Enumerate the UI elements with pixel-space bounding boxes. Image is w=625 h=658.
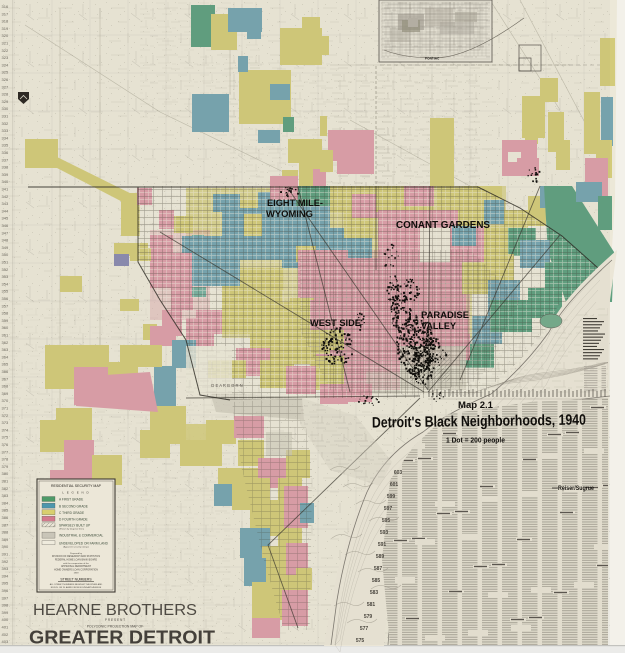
svg-text:372: 372 <box>2 413 9 418</box>
svg-text:392: 392 <box>2 559 9 564</box>
svg-text:319: 319 <box>2 26 9 31</box>
svg-text:317: 317 <box>2 11 9 16</box>
svg-text:338: 338 <box>2 165 9 170</box>
svg-text:Detroit's Black Neighborhoods,: Detroit's Black Neighborhoods, 1940 <box>372 412 586 432</box>
svg-text:397: 397 <box>2 595 9 600</box>
svg-text:380: 380 <box>2 471 9 476</box>
svg-text:344: 344 <box>2 208 9 213</box>
svg-text:342: 342 <box>2 194 9 199</box>
svg-text:C THIRD GRADE: C THIRD GRADE <box>59 511 84 515</box>
svg-text:360: 360 <box>2 325 9 330</box>
svg-text:B SECOND GRADE: B SECOND GRADE <box>59 504 88 508</box>
svg-text:EIGHT MILE-: EIGHT MILE- <box>267 198 323 209</box>
svg-text:352: 352 <box>2 267 9 272</box>
svg-text:PARADISE: PARADISE <box>421 310 469 321</box>
svg-text:355: 355 <box>2 289 9 294</box>
svg-text:D FOURTH GRADE: D FOURTH GRADE <box>59 518 88 522</box>
svg-text:370: 370 <box>2 398 9 403</box>
svg-text:381: 381 <box>2 479 9 484</box>
svg-text:395: 395 <box>2 581 9 586</box>
svg-text:SPARSELY BUILT UP: SPARSELY BUILT UP <box>59 524 90 528</box>
svg-text:349: 349 <box>2 245 9 250</box>
svg-text:387: 387 <box>2 522 9 527</box>
svg-text:359: 359 <box>2 318 9 323</box>
svg-text:358: 358 <box>2 311 9 316</box>
svg-text:368: 368 <box>2 384 9 389</box>
svg-text:402: 402 <box>2 632 9 637</box>
svg-text:WYOMING: WYOMING <box>266 209 313 220</box>
svg-text:GREATER DETROIT: GREATER DETROIT <box>29 628 215 648</box>
svg-text:378: 378 <box>2 457 9 462</box>
svg-text:362: 362 <box>2 340 9 345</box>
svg-text:365: 365 <box>2 362 9 367</box>
svg-text:ALL STREET NUMBERS BEGIN AT TH: ALL STREET NUMBERS BEGIN AT THE RIVER AN… <box>50 583 103 586</box>
svg-text:384: 384 <box>2 500 9 505</box>
svg-text:361: 361 <box>2 333 9 338</box>
svg-text:400: 400 <box>2 617 9 622</box>
svg-text:376: 376 <box>2 442 9 447</box>
svg-text:369: 369 <box>2 391 9 396</box>
svg-text:403: 403 <box>2 639 9 644</box>
svg-text:357: 357 <box>2 303 9 308</box>
svg-text:316: 316 <box>2 4 9 9</box>
svg-text:326: 326 <box>2 77 9 82</box>
svg-text:FEDERAL HOME LOAN BANK BOA: FEDERAL HOME LOAN BANK BOARD <box>55 559 98 562</box>
svg-text:HOME OWNERS LOAN CORPORATIO: HOME OWNERS LOAN CORPORATION <box>54 568 98 571</box>
svg-text:385: 385 <box>2 508 9 513</box>
svg-text:318: 318 <box>2 19 9 24</box>
svg-text:VALLEY: VALLEY <box>421 321 457 332</box>
svg-text:336: 336 <box>2 150 9 155</box>
svg-text:340: 340 <box>2 179 9 184</box>
svg-text:323: 323 <box>2 55 9 60</box>
svg-text:374: 374 <box>2 427 9 432</box>
svg-text:367: 367 <box>2 376 9 381</box>
svg-text:1939: 1939 <box>74 573 80 575</box>
svg-text:327: 327 <box>2 84 9 89</box>
svg-text:Reiser/Sugrue: Reiser/Sugrue <box>558 485 594 492</box>
svg-text:Map 2.1: Map 2.1 <box>458 400 494 411</box>
svg-text:321: 321 <box>2 41 9 46</box>
svg-text:363: 363 <box>2 347 9 352</box>
svg-text:379: 379 <box>2 464 9 469</box>
svg-text:324: 324 <box>2 62 9 67</box>
svg-text:347: 347 <box>2 230 9 235</box>
svg-text:L E G E N D: L E G E N D <box>62 491 89 495</box>
svg-text:356: 356 <box>2 296 9 301</box>
svg-text:391: 391 <box>2 552 9 557</box>
svg-text:332: 332 <box>2 121 9 126</box>
svg-text:348: 348 <box>2 238 9 243</box>
svg-text:330: 330 <box>2 106 9 111</box>
svg-text:328: 328 <box>2 92 9 97</box>
svg-text:STREET NUMBERS: STREET NUMBERS <box>60 577 92 581</box>
svg-text:396: 396 <box>2 588 9 593</box>
svg-text:353: 353 <box>2 274 9 279</box>
svg-text:371: 371 <box>2 406 9 411</box>
svg-text:354: 354 <box>2 281 9 286</box>
svg-text:345: 345 <box>2 216 9 221</box>
svg-text:RUN N. OR W. AWAY FROM BOUNDAR: RUN N. OR W. AWAY FROM BOUNDARY AVENUE <box>51 586 102 589</box>
svg-text:322: 322 <box>2 48 9 53</box>
svg-text:341: 341 <box>2 187 9 192</box>
svg-text:335: 335 <box>2 143 9 148</box>
svg-text:329: 329 <box>2 99 9 104</box>
svg-text:351: 351 <box>2 260 9 265</box>
svg-text:339: 339 <box>2 172 9 177</box>
svg-text:373: 373 <box>2 420 9 425</box>
svg-text:366: 366 <box>2 369 9 374</box>
svg-text:P R E S E N T: P R E S E N T <box>105 618 125 622</box>
svg-text:375: 375 <box>2 435 9 440</box>
svg-text:394: 394 <box>2 573 9 578</box>
svg-text:D E A R B O R N: D E A R B O R N <box>211 383 242 388</box>
svg-text:337: 337 <box>2 157 9 162</box>
svg-text:325: 325 <box>2 70 9 75</box>
svg-text:334: 334 <box>2 135 9 140</box>
svg-text:389: 389 <box>2 537 9 542</box>
svg-text:399: 399 <box>2 610 9 615</box>
svg-text:382: 382 <box>2 486 9 491</box>
svg-text:364: 364 <box>2 354 9 359</box>
svg-text:A FIRST GRADE: A FIRST GRADE <box>59 498 83 502</box>
svg-text:388: 388 <box>2 530 9 535</box>
svg-text:377: 377 <box>2 449 9 454</box>
svg-text:398: 398 <box>2 603 9 608</box>
svg-text:UNDEVELOPED OR FARM LAND: UNDEVELOPED OR FARM LAND <box>59 541 109 545</box>
svg-text:RESIDENTIAL SECURITY MAP: RESIDENTIAL SECURITY MAP <box>51 484 102 488</box>
svg-text:320: 320 <box>2 33 9 38</box>
svg-text:WEST SIDE: WEST SIDE <box>310 318 361 329</box>
svg-text:333: 333 <box>2 128 9 133</box>
svg-text:CONANT GARDENS: CONANT GARDENS <box>396 220 490 231</box>
svg-text:1 Dot = 200 people: 1 Dot = 200 people <box>446 436 505 445</box>
svg-text:346: 346 <box>2 223 9 228</box>
svg-text:(Apparent security ratings): (Apparent security ratings) <box>63 546 89 549</box>
svg-text:393: 393 <box>2 566 9 571</box>
svg-text:390: 390 <box>2 544 9 549</box>
svg-text:350: 350 <box>2 252 9 257</box>
svg-text:331: 331 <box>2 114 9 119</box>
svg-text:(Shown by diagonal lines): (Shown by diagonal lines) <box>59 529 84 531</box>
svg-text:383: 383 <box>2 493 9 498</box>
svg-text:401: 401 <box>2 625 9 630</box>
svg-text:386: 386 <box>2 515 9 520</box>
svg-text:343: 343 <box>2 201 9 206</box>
svg-text:HEARNE BROTHERS: HEARNE BROTHERS <box>33 602 197 619</box>
svg-text:INDUSTRIAL & COMMERCIAL: INDUSTRIAL & COMMERCIAL <box>59 534 104 538</box>
